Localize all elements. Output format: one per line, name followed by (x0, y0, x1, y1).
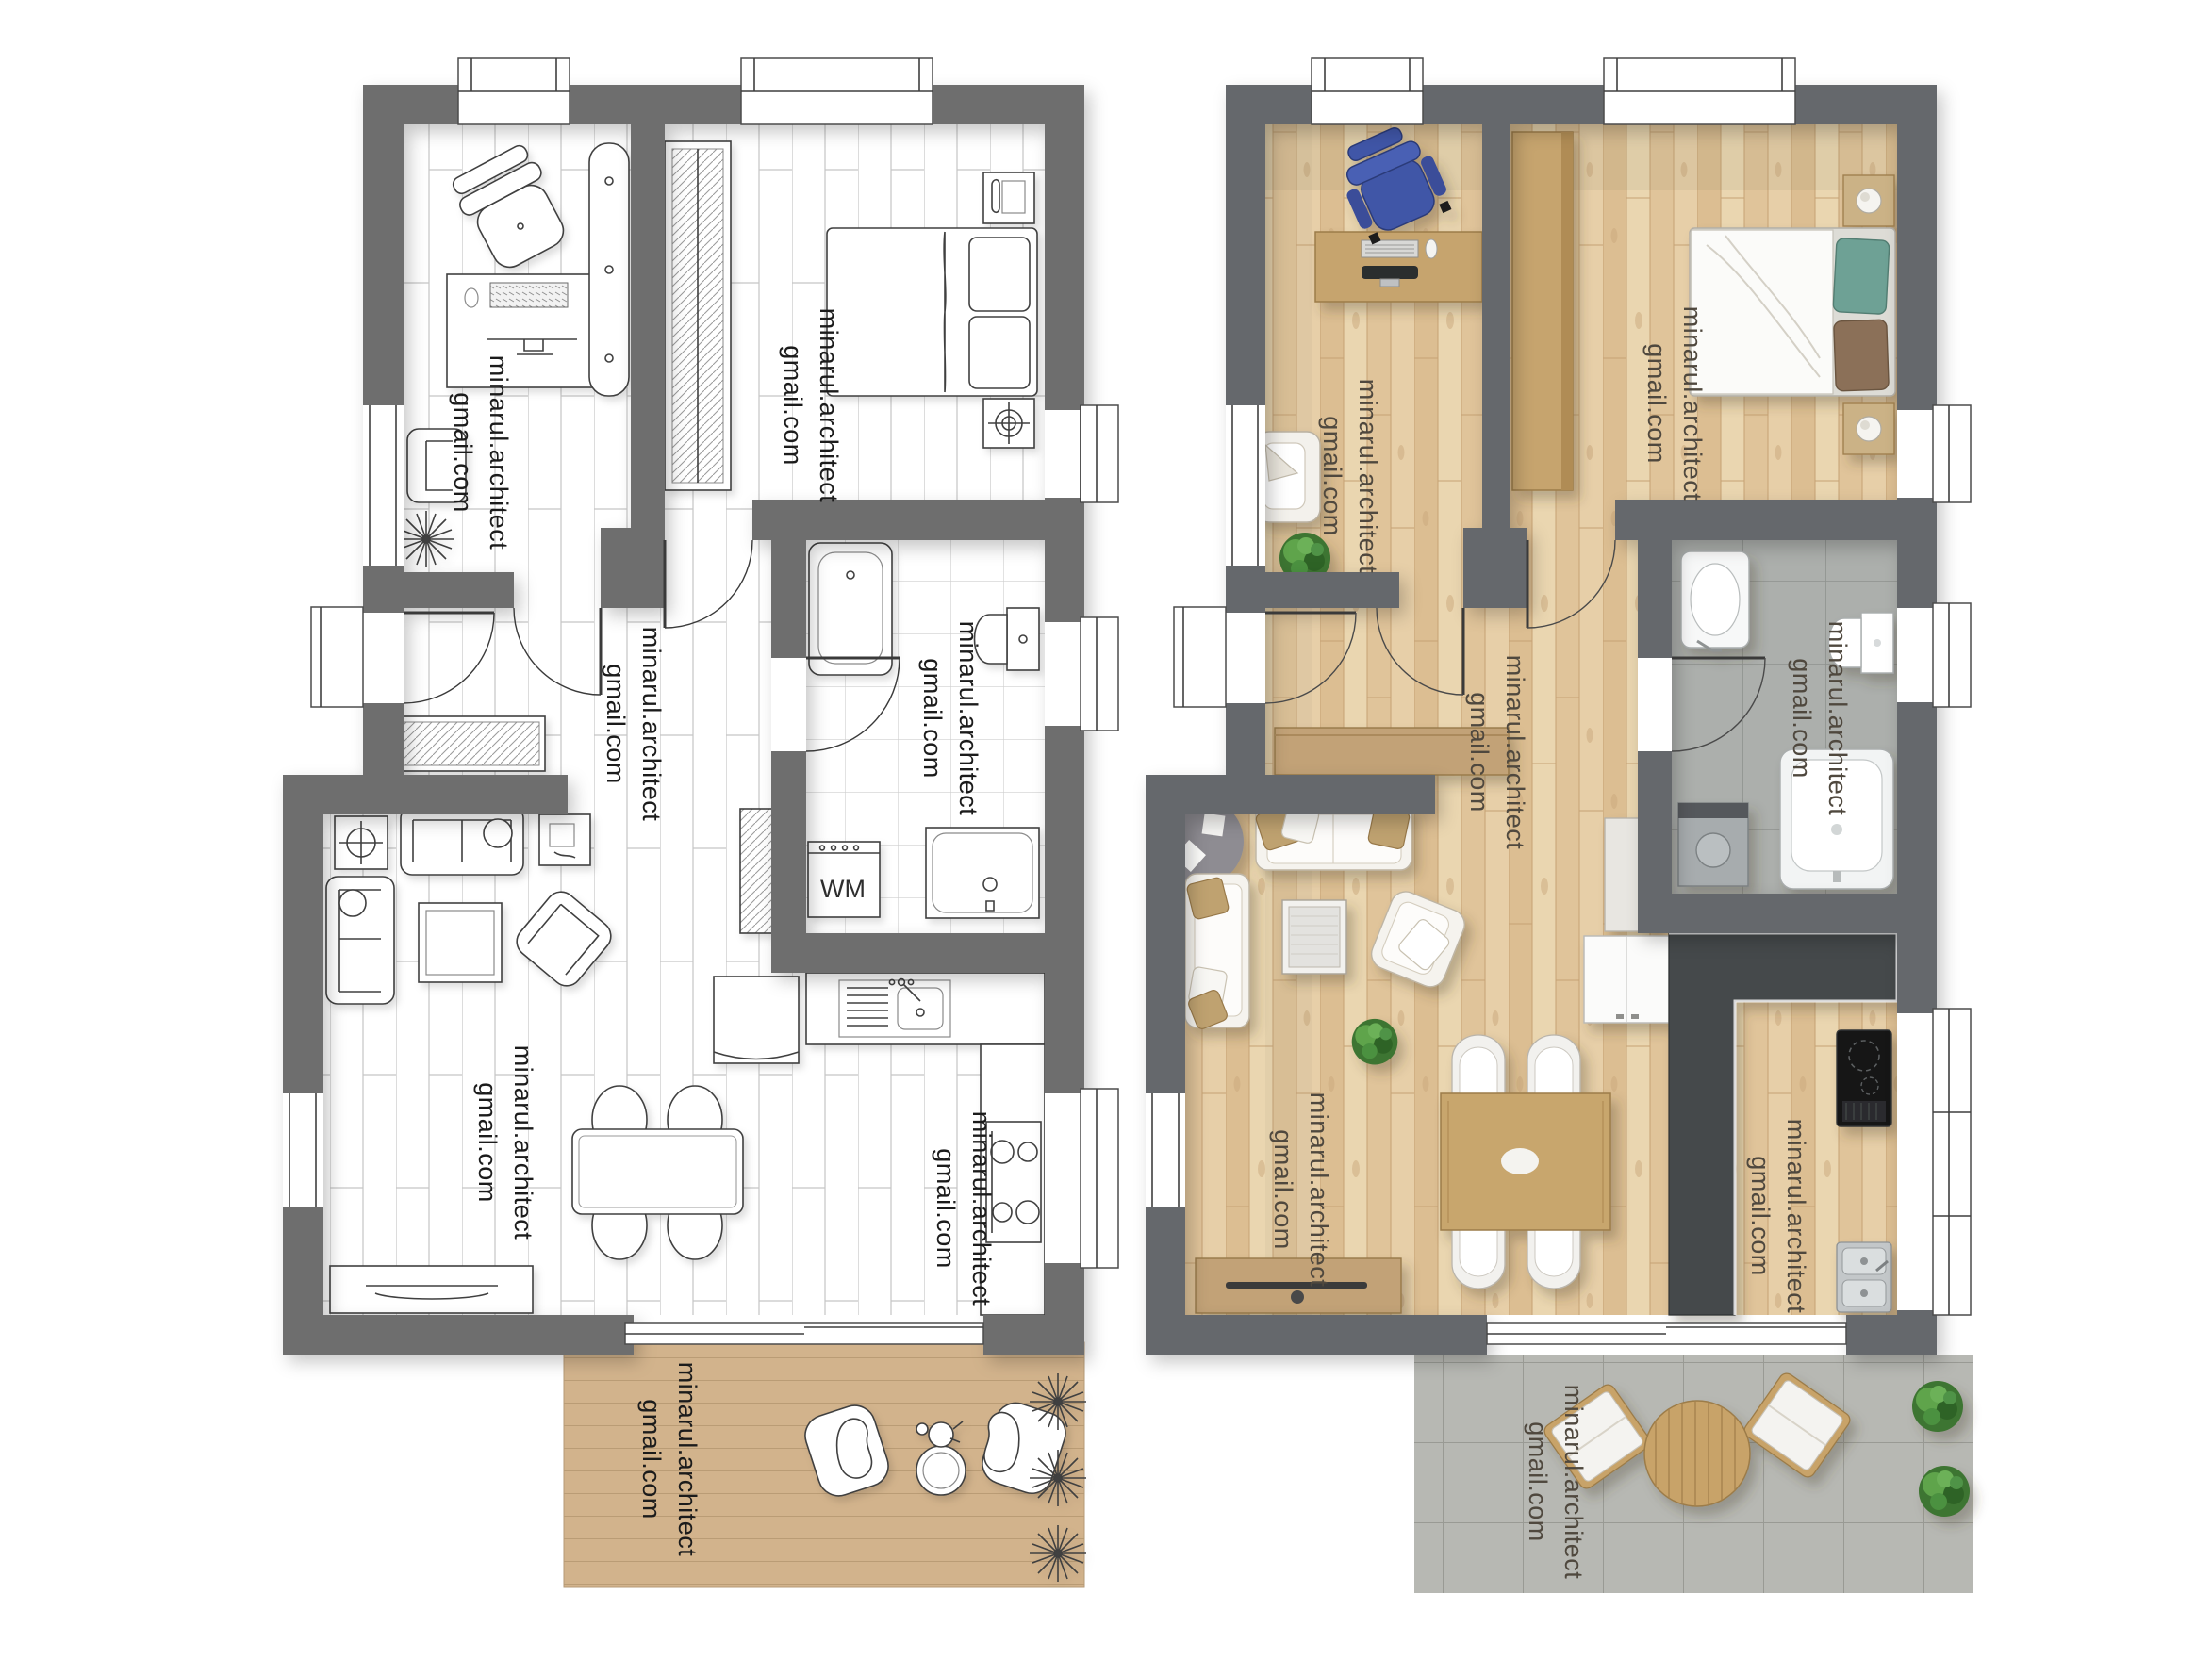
plan-canvas: WM (0, 0, 2212, 1659)
plan-monochrome: WM (283, 58, 1118, 1587)
svg-text:minarul.architect: minarul.architect (1824, 621, 1852, 816)
shower (926, 828, 1039, 918)
toilet (975, 608, 1040, 670)
svg-text:minarul.architect: minarul.architect (1501, 655, 1529, 850)
svg-text:minarul.architect: minarul.architect (1678, 306, 1707, 501)
window (363, 405, 404, 566)
plant-icon (1352, 1019, 1398, 1065)
svg-text:minarul.architect: minarul.architect (637, 627, 666, 822)
bathroom-sink (1681, 551, 1749, 650)
svg-text:minarul.architect: minarul.architect (485, 355, 513, 550)
window (1604, 58, 1795, 124)
window (1045, 405, 1118, 502)
window (741, 58, 933, 124)
fridge (714, 977, 799, 1063)
dining-chair (1452, 1035, 1505, 1093)
plant-icon (1030, 1450, 1086, 1506)
window (1312, 58, 1423, 124)
window (1045, 1089, 1118, 1268)
svg-text:minarul.architect: minarul.architect (673, 1362, 702, 1557)
terrace-round-table (1644, 1401, 1750, 1506)
svg-text:gmail.com: gmail.com (449, 392, 477, 513)
wardrobe-edge (1561, 132, 1573, 490)
plant-icon (398, 511, 454, 567)
svg-text:minarul.architect: minarul.architect (1354, 379, 1382, 574)
plant-icon (1030, 1373, 1086, 1430)
plan-rendered: minarul.architectgmail.com minarul.archi… (1146, 58, 1973, 1593)
svg-text:gmail.com: gmail.com (1642, 343, 1671, 464)
window (283, 1093, 323, 1207)
sofa-two-seat (401, 807, 523, 875)
window (1226, 405, 1265, 566)
living-lamp (335, 816, 388, 869)
plant-icon (1030, 1525, 1086, 1582)
window (1897, 405, 1971, 502)
svg-text:gmail.com: gmail.com (779, 345, 807, 466)
window (1146, 1093, 1185, 1207)
svg-text:gmail.com: gmail.com (1788, 658, 1816, 779)
terrace-sliding-door (1487, 1323, 1846, 1344)
floor-socket (983, 399, 1034, 448)
bed (1690, 228, 1895, 396)
dining-chair (1527, 1035, 1580, 1093)
svg-text:minarul.architect: minarul.architect (954, 621, 982, 816)
coffee-table (1282, 900, 1346, 974)
wm-label: WM (820, 875, 866, 903)
svg-text:gmail.com: gmail.com (602, 664, 630, 784)
office-desk (1315, 232, 1482, 302)
svg-text:minarul.architect: minarul.architect (1782, 1119, 1810, 1314)
nightstand-lamp (1843, 175, 1894, 226)
chaise-sofa (326, 877, 394, 1004)
dining-chair (1452, 1230, 1505, 1289)
office-cabinet (589, 143, 629, 396)
svg-text:gmail.com: gmail.com (1746, 1156, 1775, 1276)
svg-text:minarul.architect: minarul.architect (1305, 1092, 1333, 1288)
bed (827, 228, 1037, 396)
svg-text:gmail.com: gmail.com (1269, 1129, 1297, 1250)
bathtub (809, 543, 892, 675)
window (1897, 1009, 1971, 1315)
kitchen-white-cabinet (1584, 936, 1669, 1023)
tv-table (539, 814, 590, 865)
svg-text:minarul.architect: minarul.architect (815, 308, 843, 503)
cooktop (1837, 1030, 1891, 1126)
office-desk (447, 274, 594, 387)
svg-text:gmail.com: gmail.com (932, 1148, 960, 1269)
coffee-table (419, 903, 502, 982)
washing-machine (1678, 803, 1748, 886)
window (1897, 603, 1971, 707)
terrace-sliding-door (625, 1323, 983, 1344)
svg-text:gmail.com: gmail.com (1524, 1421, 1552, 1542)
window (1045, 617, 1118, 731)
svg-text:gmail.com: gmail.com (637, 1399, 666, 1519)
svg-text:gmail.com: gmail.com (1465, 692, 1494, 813)
washing-machine: WM (808, 842, 880, 917)
svg-text:gmail.com: gmail.com (1318, 416, 1346, 536)
nightstand-phone (983, 172, 1034, 223)
bedroom-wardrobe (665, 141, 731, 490)
floor-plan-sheet: WM (0, 0, 2212, 1659)
office-armchair (1256, 432, 1320, 522)
window (458, 58, 570, 124)
plant-icon (1912, 1381, 1963, 1432)
svg-text:minarul.architect: minarul.architect (509, 1045, 537, 1240)
chaise-sofa (1185, 874, 1249, 1030)
nightstand-lamp (1843, 403, 1894, 454)
media-sideboard (1196, 1258, 1401, 1313)
svg-text:minarul.architect: minarul.architect (967, 1111, 996, 1306)
kitchen-sink (1837, 1242, 1891, 1312)
media-sideboard (330, 1266, 533, 1313)
dining-chair (1527, 1230, 1580, 1289)
hall-sideboard (396, 716, 545, 771)
kitchen-counter-top (806, 973, 1045, 1044)
svg-text:minarul.architect: minarul.architect (1560, 1385, 1588, 1580)
plant-icon (1919, 1466, 1970, 1517)
svg-text:gmail.com: gmail.com (473, 1082, 502, 1203)
svg-text:gmail.com: gmail.com (918, 658, 947, 779)
